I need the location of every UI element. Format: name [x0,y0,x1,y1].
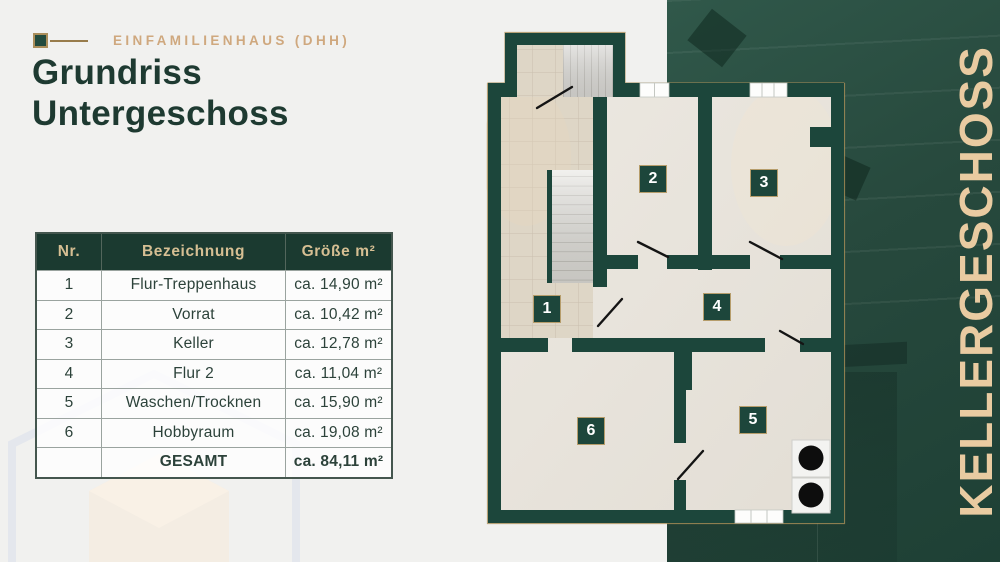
room-label-6: 6 [577,417,605,445]
header-cell-groesse: Größe m² [285,234,391,270]
page-title-line1: Grundriss [32,52,289,93]
total-size: ca. 84,11 m² [285,448,391,477]
slide: KELLERGESCHOSS EINFAMILIENHAUS (DHH) Gru… [0,0,1000,562]
page-title-line2: Untergeschoss [32,93,289,134]
table-total-row: GESAMT ca. 84,11 m² [37,447,391,477]
row-nr: 2 [37,301,101,330]
row-size: ca. 14,90 m² [285,271,391,300]
table-row: 2 Vorrat ca. 10,42 m² [37,300,391,330]
table-row: 5 Waschen/Trocknen ca. 15,90 m² [37,388,391,418]
row-size: ca. 10,42 m² [285,301,391,330]
header-cell-nr: Nr. [37,234,101,270]
page-title: Grundriss Untergeschoss [32,52,289,134]
row-nr: 4 [37,360,101,389]
table-row: 4 Flur 2 ca. 11,04 m² [37,359,391,389]
room-label-5: 5 [739,406,767,434]
stair-rail-wall [547,170,552,283]
row-nr: 6 [37,419,101,448]
room-label-3: 3 [750,169,778,197]
table-row: 1 Flur-Treppenhaus ca. 14,90 m² [37,270,391,300]
row-name: Keller [101,330,285,359]
total-nr-empty [37,448,101,477]
table-header-row: Nr. Bezeichnung Größe m² [37,234,391,270]
row-name: Flur-Treppenhaus [101,271,285,300]
row-name: Vorrat [101,301,285,330]
row-nr: 1 [37,271,101,300]
room-label-4: 4 [703,293,731,321]
porch-tile-floor [517,45,563,97]
room-label-2: 2 [639,165,667,193]
row-name: Hobbyraum [101,419,285,448]
row-size: ca. 19,08 m² [285,419,391,448]
room-area-table: Nr. Bezeichnung Größe m² 1 Flur-Treppenh… [35,232,393,479]
table-row: 3 Keller ca. 12,78 m² [37,329,391,359]
row-name: Waschen/Trocknen [101,389,285,418]
eyebrow: EINFAMILIENHAUS (DHH) [33,33,350,48]
row-name: Flur 2 [101,360,285,389]
eyebrow-label: EINFAMILIENHAUS (DHH) [113,33,350,48]
room-label-1: 1 [533,295,561,323]
eyebrow-rule [50,40,88,42]
row-nr: 5 [37,389,101,418]
floor-name-vertical-label: KELLERGESCHOSS [949,45,1000,518]
washer-dryer-icons [792,440,830,513]
table-row: 6 Hobbyraum ca. 19,08 m² [37,418,391,448]
row-size: ca. 15,90 m² [285,389,391,418]
floor-plan: 1 2 3 4 5 6 [486,26,846,526]
row-size: ca. 12,78 m² [285,330,391,359]
row-size: ca. 11,04 m² [285,360,391,389]
square-bullet-icon [33,33,48,48]
total-label: GESAMT [101,448,285,477]
header-cell-bezeichnung: Bezeichnung [101,234,285,270]
row-nr: 3 [37,330,101,359]
